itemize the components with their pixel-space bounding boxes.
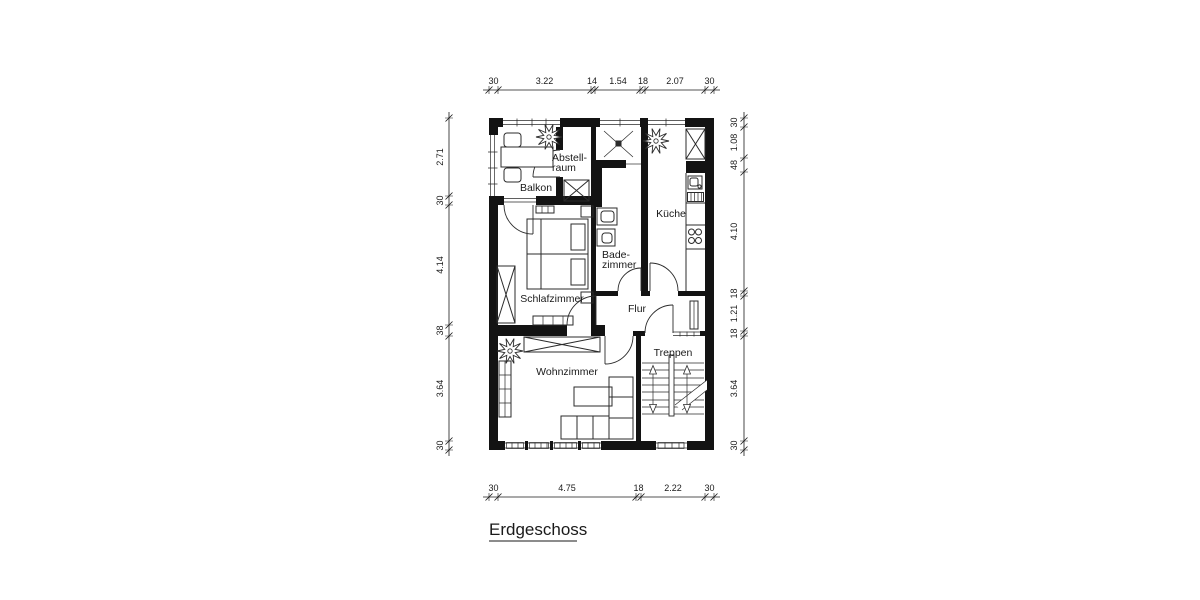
toilet <box>597 229 615 246</box>
door-badezimmer <box>618 268 641 291</box>
dim-value: 4.14 <box>435 256 445 274</box>
kitchen-counter <box>686 173 705 291</box>
dimension-chain-left: 2.71 30 4.14 38 3.64 30 <box>435 112 453 456</box>
dim-value: 18 <box>729 288 739 298</box>
label-wohnzimmer: Wohnzimmer <box>536 366 598 378</box>
coffee-table <box>574 387 612 406</box>
dim-value: 30 <box>729 440 739 450</box>
room-labels: Balkon Abstell- raum Küche Bade- zimmer … <box>520 152 693 378</box>
dim-value: 30 <box>729 117 739 127</box>
shaft-symbol <box>604 131 633 157</box>
label-schlafzimmer: Schlafzimmer <box>520 293 584 305</box>
dim-value: 18 <box>729 328 739 338</box>
dim-value: 30 <box>488 483 498 493</box>
radiator-row <box>507 443 685 449</box>
plant-icon <box>497 339 523 364</box>
double-bed <box>527 219 588 289</box>
door-wohnzimmer <box>605 336 633 364</box>
wardrobe <box>497 266 515 323</box>
label-abstellraum-2: raum <box>552 162 576 174</box>
dim-value: 14 <box>587 76 597 86</box>
label-kueche: Küche <box>656 208 686 220</box>
dim-value: 3.64 <box>729 380 739 398</box>
dim-value: 4.10 <box>729 223 739 241</box>
floorplan-page: Balkon Abstell- raum Küche Bade- zimmer … <box>0 0 1200 600</box>
dim-value: 30 <box>435 195 445 205</box>
dim-value: 2.07 <box>666 76 684 86</box>
kitchen-cupboard <box>686 129 705 159</box>
bathroom-sink <box>597 208 617 225</box>
dim-value: 38 <box>435 325 445 335</box>
staircase <box>642 355 707 416</box>
sofa <box>561 377 633 439</box>
dim-value: 1.54 <box>609 76 627 86</box>
dim-value: 30 <box>704 483 714 493</box>
floorplan-drawing: Balkon Abstell- raum Küche Bade- zimmer … <box>0 0 1200 600</box>
dim-value: 30 <box>488 76 498 86</box>
dim-value: 1.21 <box>729 305 739 323</box>
dim-value: 48 <box>729 160 739 170</box>
plan-title-text: Erdgeschoss <box>489 520 587 539</box>
hall-radiator <box>690 301 698 329</box>
stair-stringer <box>669 355 674 416</box>
dim-value: 3.22 <box>536 76 554 86</box>
dim-value: 3.64 <box>435 380 445 398</box>
dim-value: 30 <box>704 76 714 86</box>
shelf <box>499 361 511 417</box>
dim-value: 18 <box>633 483 643 493</box>
label-treppen: Treppen <box>654 347 693 359</box>
dimension-chain-top: 30 3.22 14 1.54 18 2.07 30 <box>483 76 720 94</box>
dim-value: 4.75 <box>558 483 576 493</box>
dim-value: 18 <box>638 76 648 86</box>
dim-value: 1.08 <box>729 134 739 152</box>
dim-value: 2.71 <box>435 148 445 166</box>
plan-title: Erdgeschoss <box>489 520 587 541</box>
label-balkon: Balkon <box>520 182 552 194</box>
dimension-chain-bottom: 30 4.75 18 2.22 30 <box>483 483 720 501</box>
sideboard <box>524 337 600 352</box>
dimension-chain-right: 30 1.08 48 4.10 18 1.21 18 3.64 30 <box>729 112 748 456</box>
stair-break <box>675 380 707 410</box>
door-kueche <box>650 263 678 291</box>
label-badezimmer-2: zimmer <box>602 259 637 271</box>
dim-value: 2.22 <box>664 483 682 493</box>
label-flur: Flur <box>628 303 647 315</box>
bedroom-radiator <box>536 206 554 213</box>
door-treppen <box>645 305 673 333</box>
dim-value: 30 <box>435 440 445 450</box>
